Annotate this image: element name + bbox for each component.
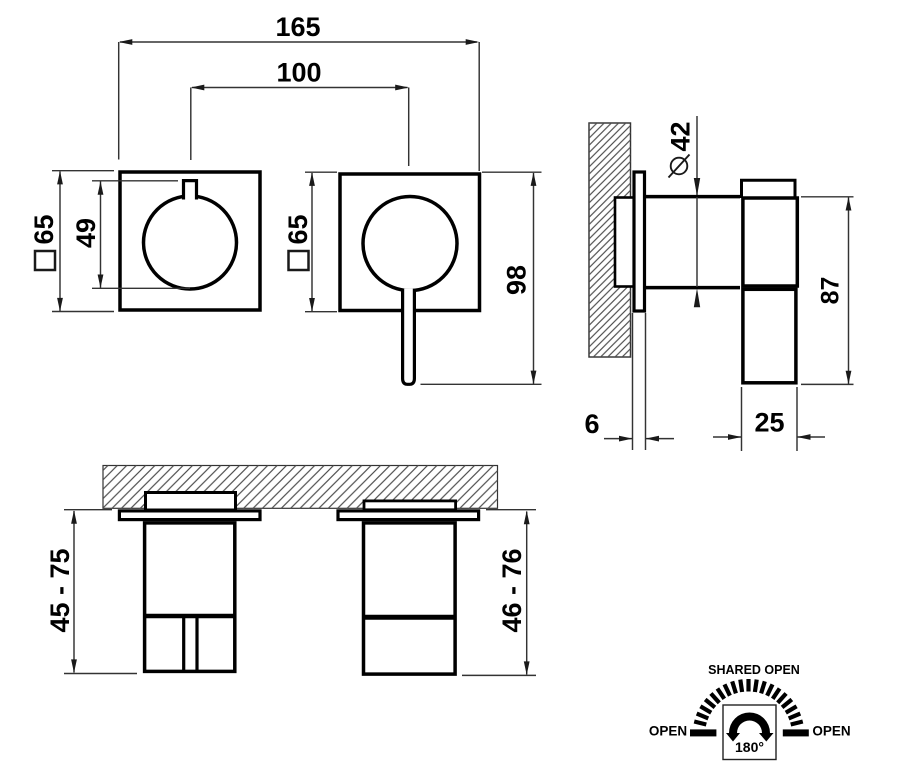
svg-text:45 - 75: 45 - 75: [45, 548, 75, 632]
svg-text:165: 165: [275, 12, 320, 42]
svg-text:100: 100: [276, 58, 321, 88]
svg-text:OPEN: OPEN: [812, 724, 850, 739]
svg-text:180°: 180°: [735, 739, 764, 755]
svg-text:65: 65: [29, 214, 59, 244]
svg-text:49: 49: [71, 218, 101, 248]
svg-text:65: 65: [283, 214, 313, 244]
svg-text:25: 25: [754, 408, 784, 438]
svg-text:46 - 76: 46 - 76: [497, 548, 527, 632]
svg-text:6: 6: [584, 409, 599, 439]
svg-text:OPEN: OPEN: [649, 724, 687, 739]
svg-text:SHARED OPEN: SHARED OPEN: [708, 663, 800, 677]
svg-text:98: 98: [502, 265, 532, 295]
svg-text:87: 87: [817, 277, 845, 305]
svg-text:42: 42: [666, 121, 696, 151]
